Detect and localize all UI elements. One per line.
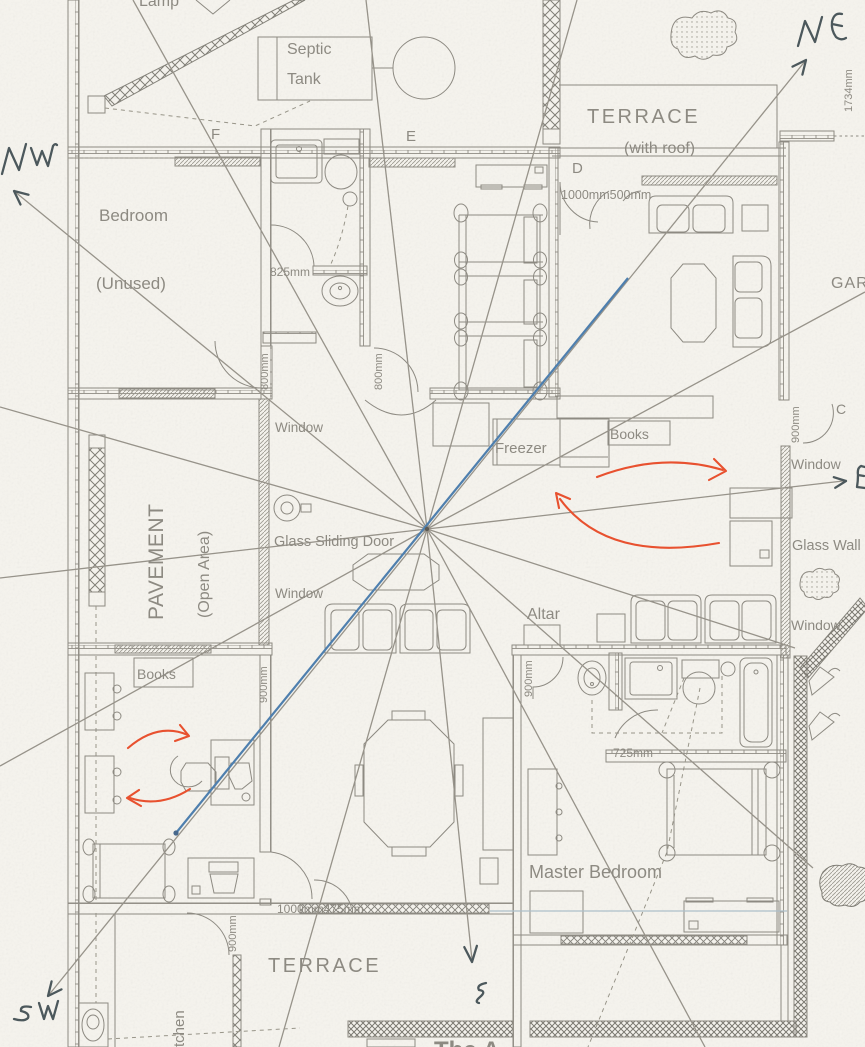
svg-text:725mm: 725mm	[613, 746, 653, 760]
svg-text:Window: Window	[791, 456, 842, 472]
svg-text:Bedroom: Bedroom	[99, 206, 168, 225]
svg-text:Lamp: Lamp	[139, 0, 179, 10]
svg-text:Altar: Altar	[527, 606, 561, 623]
svg-text:1000mm500mm: 1000mm500mm	[561, 188, 651, 202]
svg-text:Tank: Tank	[287, 71, 322, 88]
svg-text:Master Bedroom: Master Bedroom	[529, 862, 662, 882]
svg-text:1000mm475mm: 1000mm475mm	[277, 902, 364, 916]
svg-text:1734mm: 1734mm	[843, 69, 855, 112]
svg-text:800mm: 800mm	[373, 353, 385, 390]
svg-text:Glass Sliding Door: Glass Sliding Door	[274, 534, 394, 550]
svg-text:(Unused): (Unused)	[96, 274, 166, 293]
svg-text:Books: Books	[137, 666, 176, 682]
svg-text:TERRACE: TERRACE	[268, 955, 381, 977]
svg-text:800mm: 800mm	[259, 353, 271, 390]
svg-text:(with roof): (with roof)	[624, 140, 695, 157]
svg-text:D: D	[572, 160, 583, 177]
svg-text:Window: Window	[275, 420, 323, 435]
svg-text:Freezer: Freezer	[495, 440, 547, 457]
svg-text:The A: The A	[434, 1037, 500, 1047]
svg-text:900mm: 900mm	[227, 915, 239, 952]
svg-text:C: C	[836, 401, 846, 417]
svg-text:900mm: 900mm	[258, 666, 270, 703]
svg-text:Window: Window	[791, 617, 842, 633]
svg-text:Window: Window	[275, 586, 323, 601]
svg-text:tchen: tchen	[171, 1010, 188, 1047]
svg-text:F: F	[211, 126, 220, 143]
svg-text:900mm: 900mm	[523, 660, 535, 697]
svg-text:825mm: 825mm	[270, 265, 310, 279]
svg-text:(Open Area): (Open Area)	[196, 531, 213, 618]
svg-text:GAR: GAR	[831, 275, 865, 292]
svg-text:PAVEMENT: PAVEMENT	[145, 504, 168, 620]
svg-text:Glass Wall: Glass Wall	[792, 538, 861, 554]
svg-text:E: E	[406, 128, 416, 145]
svg-text:Septic: Septic	[287, 41, 331, 58]
svg-text:Books: Books	[610, 426, 649, 442]
svg-text:900mm: 900mm	[790, 406, 802, 443]
svg-text:TERRACE: TERRACE	[587, 106, 700, 128]
